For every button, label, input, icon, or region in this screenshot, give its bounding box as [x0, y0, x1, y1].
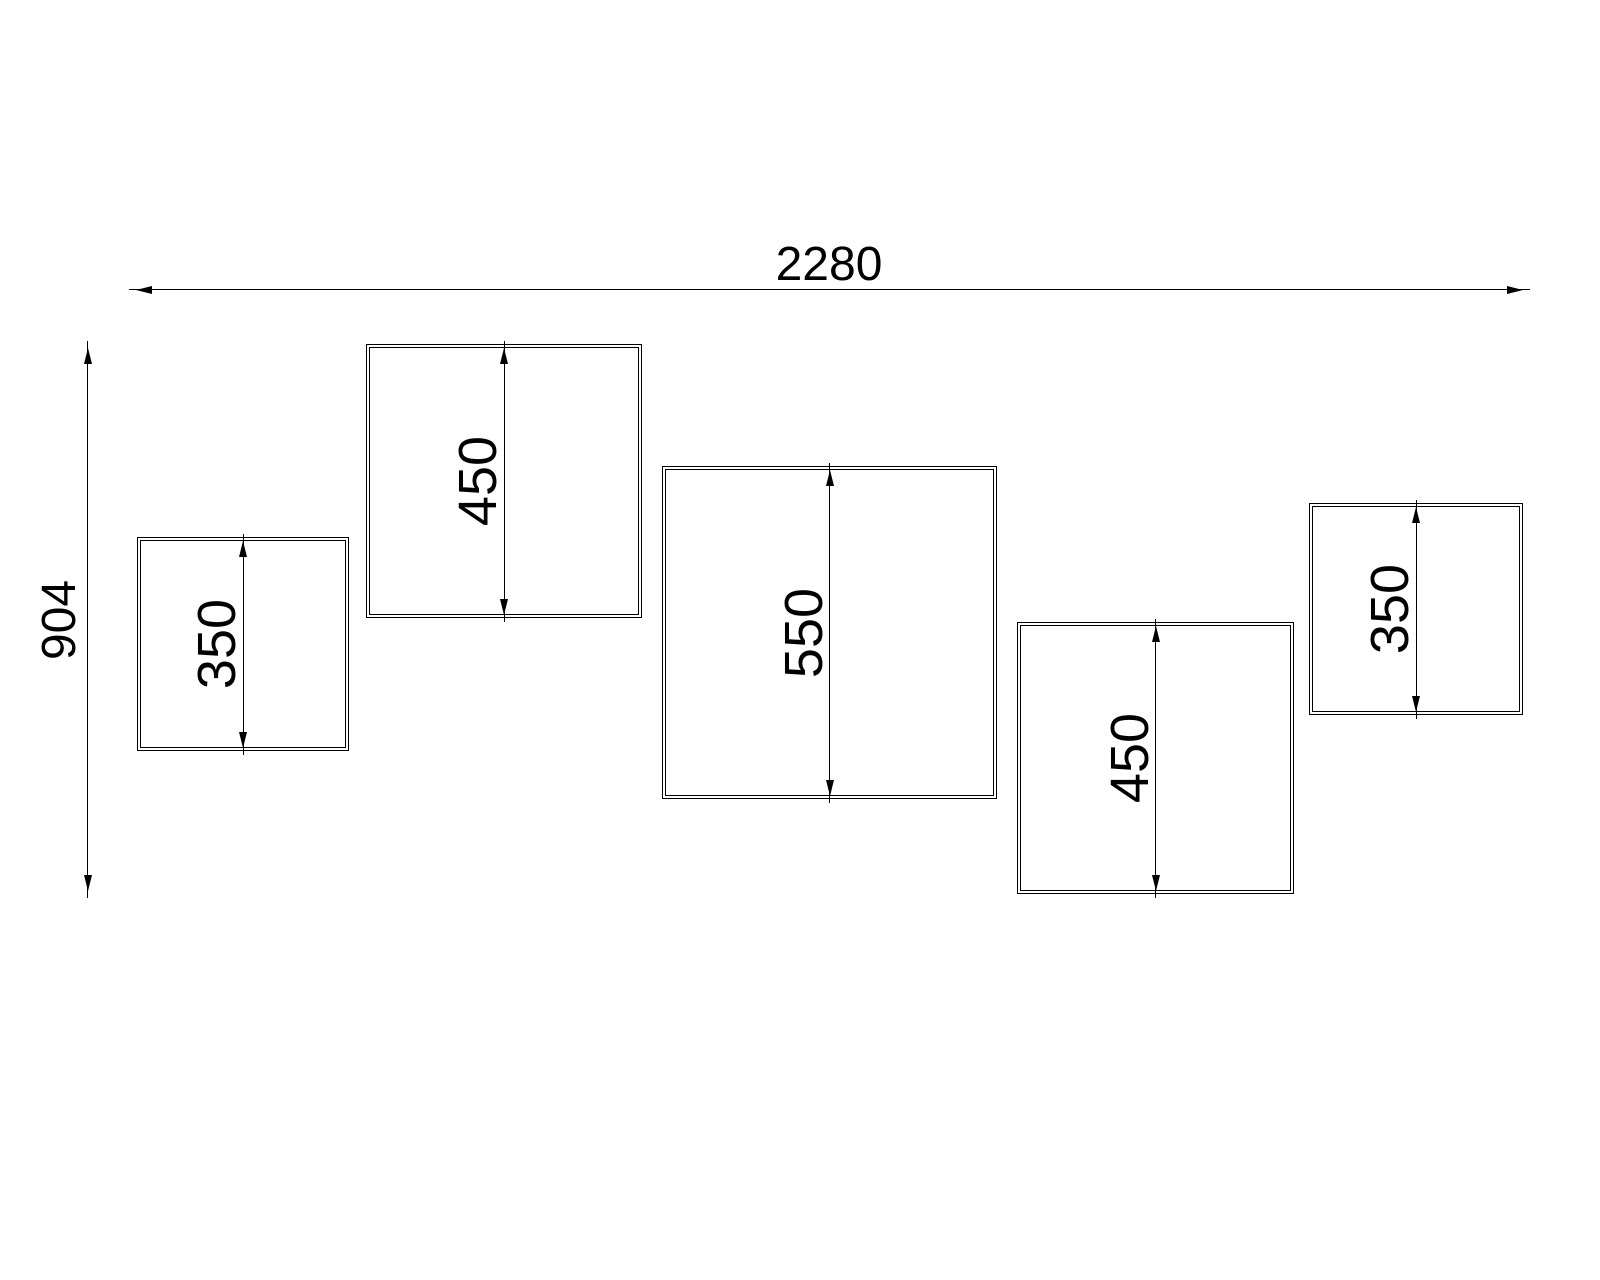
dimension-arrow-tail	[504, 341, 505, 348]
dimension-arrow-tail	[243, 748, 244, 755]
dimension-arrow-tail	[1416, 500, 1417, 507]
panel-4: 450	[1017, 622, 1294, 894]
overall-width-label: 2280	[719, 240, 939, 290]
overall-height-label: 904	[35, 540, 85, 700]
panel-5-height-label: 350	[1362, 529, 1418, 689]
dimension-arrow-tail	[829, 796, 830, 803]
dimension-arrow-tail	[504, 615, 505, 622]
panel-5: 350	[1309, 503, 1523, 715]
panel-3-height-label: 550	[776, 553, 832, 713]
dimension-arrow-tail	[1155, 891, 1156, 898]
panel-3: 550	[662, 466, 997, 799]
panel-2-height-label: 450	[450, 401, 506, 561]
dimension-arrow-tail	[1523, 289, 1530, 290]
panel-1-height-label: 350	[189, 564, 245, 724]
cad-drawing-canvas: 2280 904 350 450 550	[0, 0, 1600, 1280]
panel-2: 450	[366, 344, 642, 618]
dimension-arrow-tail	[829, 463, 830, 470]
dimension-arrow-tail	[1416, 712, 1417, 719]
dimension-arrow-tail	[87, 341, 88, 348]
dimension-arrow-tail	[243, 534, 244, 541]
dimension-arrow-tail	[1155, 619, 1156, 626]
dimension-arrow-tail	[129, 289, 136, 290]
panel-1: 350	[137, 537, 349, 751]
dimension-arrow-tail	[87, 891, 88, 898]
overall-height-dimension-line	[87, 348, 88, 891]
panel-4-height-label: 450	[1102, 678, 1158, 838]
